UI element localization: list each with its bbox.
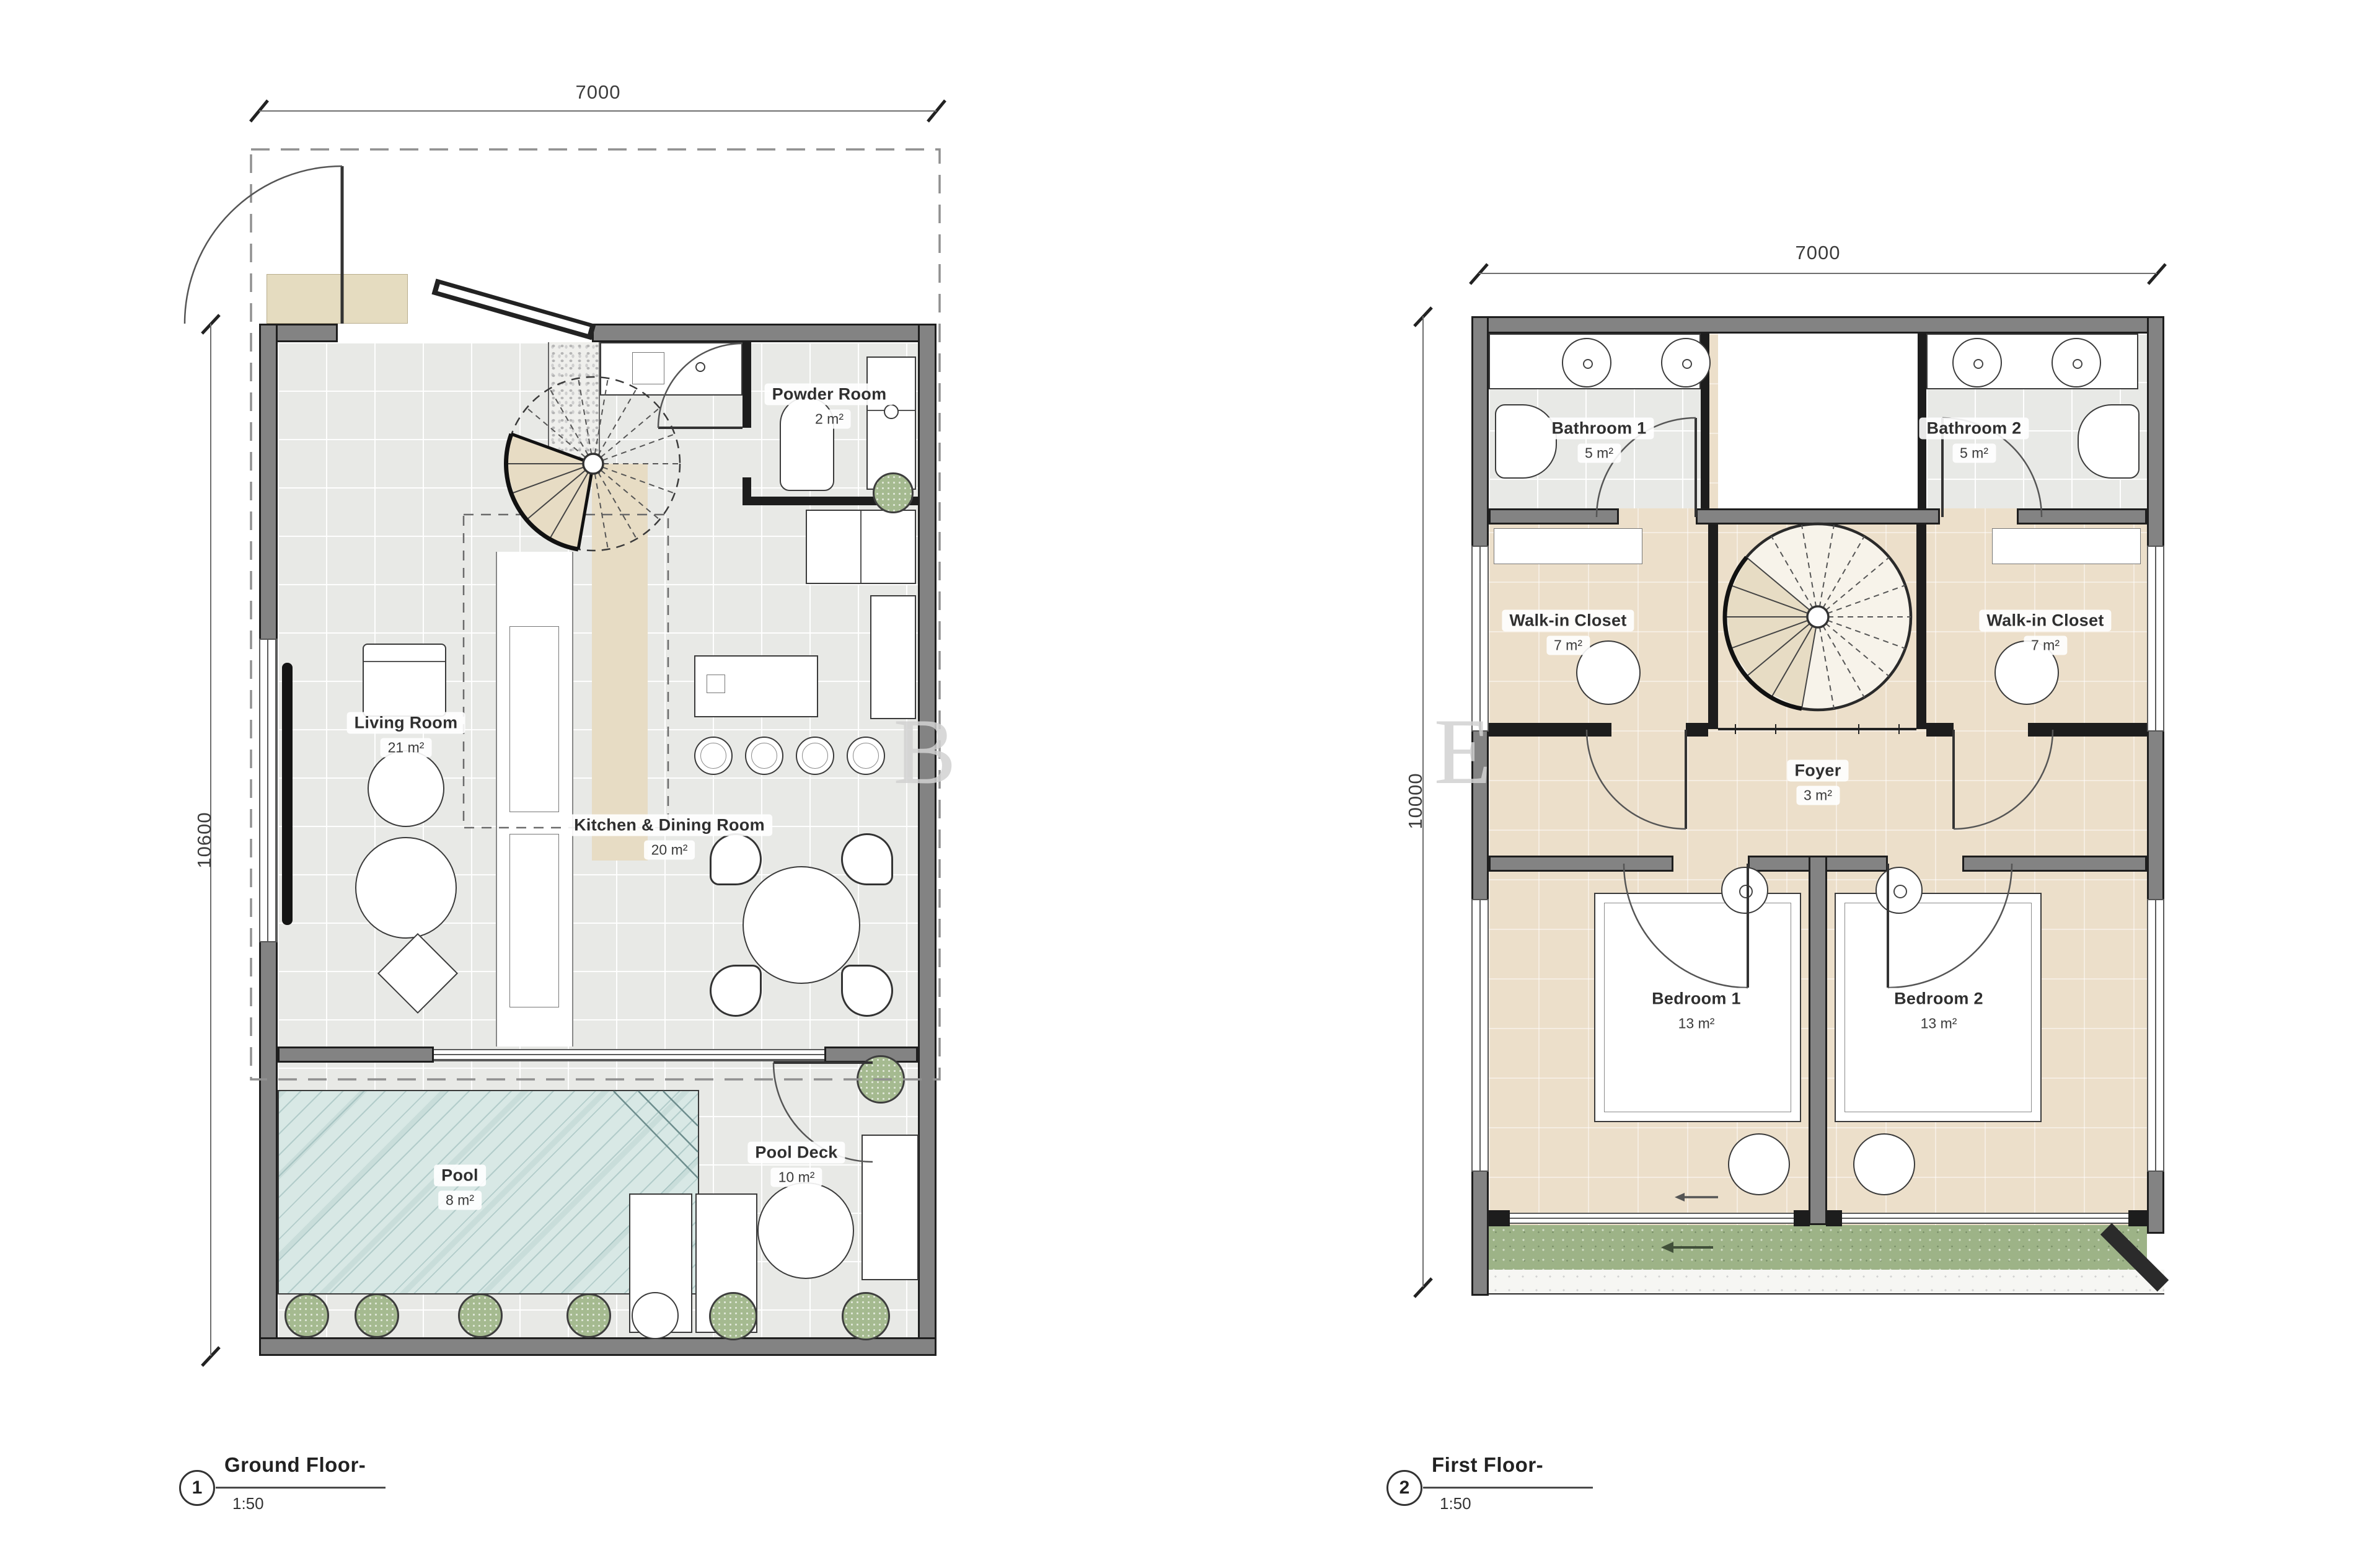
gf-dining-chair-ne <box>841 833 893 885</box>
room-area: 10 m² <box>771 1168 822 1187</box>
gf-callout-title: Ground Floor- <box>224 1453 366 1477</box>
gf-bar-stool-2 <box>745 737 783 775</box>
gf-armchair <box>363 644 446 717</box>
room-name: Pool <box>434 1165 486 1187</box>
ff-bedroom-wall-right <box>1962 856 2147 872</box>
room-area: 7 m² <box>2024 636 2067 655</box>
gf-stair-walkway <box>592 464 648 861</box>
ff-pouf-bedroom2 <box>1853 1133 1915 1195</box>
ff-callout-number: 2 <box>1386 1470 1422 1506</box>
room-name: Walk-in Closet <box>1979 610 2111 632</box>
room-name: Foyer <box>1787 760 1848 782</box>
gf-callout-scale: 1:50 <box>232 1494 264 1513</box>
room-name: Powder Room <box>765 384 894 405</box>
gf-ottoman <box>355 837 457 939</box>
floor-plan-sheet: 7000 10600 Powder Room 2 m² Living Room … <box>0 0 2380 1558</box>
gf-plant-2 <box>355 1293 399 1338</box>
gf-powder-plant <box>873 472 914 513</box>
gf-bar-stool-1 <box>694 737 733 775</box>
room-area: 13 m² <box>1913 1014 1965 1034</box>
ff-stair-wall-right <box>1916 524 1926 729</box>
gf-callout-number: 1 <box>179 1470 215 1506</box>
room-label-closet-right: Walk-in Closet 7 m² <box>1979 610 2111 655</box>
gf-dim-line-top <box>259 110 937 112</box>
ff-slider-stub-3 <box>1826 1210 1842 1226</box>
gf-angled-entry-wall-core <box>439 288 589 330</box>
ff-bath2-drain-2 <box>2073 359 2082 369</box>
ff-wall-below-bath1-left <box>1489 508 1619 524</box>
room-label-foyer: Foyer 3 m² <box>1787 760 1848 805</box>
ff-lamp-2 <box>1893 885 1907 898</box>
watermark-letter-b: B <box>893 697 956 805</box>
room-label-bedroom2: Bedroom 2 13 m² <box>1887 988 1991 1034</box>
gf-dining-chair-sw <box>710 965 762 1017</box>
ff-dim-line-top <box>1479 273 2157 274</box>
room-area: 20 m² <box>644 841 695 860</box>
gf-stone-strip <box>548 342 600 474</box>
ff-callout-scale: 1:50 <box>1440 1494 1471 1513</box>
ff-stair-wall-left <box>1708 524 1718 729</box>
room-label-bedroom1: Bedroom 1 13 m² <box>1644 988 1748 1034</box>
room-name: Bedroom 2 <box>1887 988 1991 1010</box>
gf-island-sink <box>707 675 725 693</box>
ff-pouf-bedroom1 <box>1728 1133 1790 1195</box>
room-name: Kitchen & Dining Room <box>566 815 772 836</box>
room-area: 13 m² <box>1671 1014 1722 1034</box>
room-name: Pool Deck <box>747 1142 845 1164</box>
ff-slider-stub-1 <box>1489 1210 1510 1226</box>
gf-dining-table <box>743 866 860 984</box>
ff-bedroom1-slider <box>1510 1213 1794 1224</box>
ff-window-left-bedroom <box>1471 899 1489 1172</box>
ff-closet2-wardrobe <box>1992 528 2141 564</box>
gf-wall-right <box>918 324 937 1356</box>
watermark-letter-e: E <box>1434 697 1492 805</box>
gf-plant-7 <box>857 1055 905 1104</box>
gf-cooktop <box>632 352 664 384</box>
ff-lamp-1 <box>1739 885 1753 898</box>
ff-closet1-wall-stub <box>1686 723 1708 737</box>
gf-wall-top-right <box>592 324 937 342</box>
ff-closet2-wall-stub <box>1926 723 1954 737</box>
ff-closet1-wardrobe <box>1494 528 1642 564</box>
gf-angled-entry-wall <box>434 286 594 332</box>
room-area: 2 m² <box>808 410 851 429</box>
gf-kitchen-sink <box>695 362 705 372</box>
ff-dim-top-label: 7000 <box>1796 242 1841 264</box>
gf-plant-1 <box>284 1293 329 1338</box>
ff-bedroom-divider-wall <box>1809 856 1827 1225</box>
ff-closet2-wall <box>2028 723 2147 737</box>
ff-bath2-drain-1 <box>1973 359 1983 369</box>
room-area: 3 m² <box>1796 786 1840 805</box>
room-name: Walk-in Closet <box>1502 610 1634 632</box>
gf-callout-underline <box>216 1487 386 1489</box>
gf-kitchen-counter-top <box>600 342 743 396</box>
room-label-pool-deck: Pool Deck 10 m² <box>747 1142 845 1187</box>
room-label-pool: Pool 8 m² <box>434 1165 486 1210</box>
ff-stair-void <box>1718 334 1918 508</box>
ff-slider-stub-4 <box>2128 1210 2147 1226</box>
gf-planter-white <box>632 1292 679 1339</box>
room-name: Living Room <box>347 712 465 734</box>
gf-plant-6 <box>842 1292 890 1340</box>
gf-plant-3 <box>458 1293 503 1338</box>
ff-bath2-toilet <box>2078 404 2140 479</box>
gf-wall-bottom <box>259 1337 937 1356</box>
room-label-kitchen: Kitchen & Dining Room 20 m² <box>566 815 772 860</box>
gf-dim-left-label: 10600 <box>193 812 216 868</box>
ff-bedroom2-slider <box>1842 1213 2128 1224</box>
room-name: Bathroom 1 <box>1544 418 1654 440</box>
ff-balcony-turf <box>1489 1225 2147 1270</box>
ff-balcony-edge <box>1489 1270 2164 1295</box>
room-area: 7 m² <box>1546 636 1590 655</box>
room-name: Bedroom 1 <box>1644 988 1748 1010</box>
gf-dim-top-label: 7000 <box>576 81 621 104</box>
gf-sliding-glass-door <box>434 1049 824 1061</box>
ff-wall-top <box>1471 316 2164 334</box>
gf-dining-chair-se <box>841 965 893 1017</box>
gf-powder-wall-upper <box>743 342 751 428</box>
gf-bar-stool-3 <box>796 737 834 775</box>
gf-tv-console <box>282 663 293 925</box>
ff-bedroom-wall-left <box>1489 856 1673 872</box>
room-label-powder: Powder Room 2 m² <box>765 384 894 429</box>
ff-callout-title: First Floor- <box>1432 1453 1543 1477</box>
ff-wall-below-bath-center <box>1696 508 1940 524</box>
ff-window-right-closet <box>2147 546 2164 732</box>
room-label-bathroom2: Bathroom 2 5 m² <box>1919 418 2029 463</box>
room-area: 21 m² <box>381 738 432 758</box>
ff-slider-stub-2 <box>1794 1210 1810 1226</box>
room-label-bathroom1: Bathroom 1 5 m² <box>1544 418 1654 463</box>
ff-dim-left-label: 10000 <box>1404 772 1427 829</box>
gf-kitchen-appliances <box>806 510 916 584</box>
room-area: 8 m² <box>438 1191 482 1210</box>
ff-wall-below-bath2-right <box>2017 508 2147 524</box>
gf-shelf-lower <box>509 834 559 1007</box>
ff-callout-underline <box>1423 1487 1593 1489</box>
gf-side-table <box>368 750 444 827</box>
room-name: Bathroom 2 <box>1919 418 2029 440</box>
room-label-living: Living Room 21 m² <box>347 712 465 758</box>
gf-entry-mat <box>267 274 408 324</box>
ff-window-right-bedroom <box>2147 899 2164 1172</box>
room-area: 5 m² <box>1577 444 1621 463</box>
gf-shelf-upper <box>509 626 559 812</box>
gf-bar-stool-4 <box>847 737 885 775</box>
room-area: 5 m² <box>1952 444 1996 463</box>
ff-bath1-drain-2 <box>1682 359 1692 369</box>
ff-closet1-wall <box>1489 723 1611 737</box>
gf-plant-4 <box>566 1293 611 1338</box>
room-label-closet-left: Walk-in Closet 7 m² <box>1502 610 1634 655</box>
gf-lounger-3 <box>862 1135 919 1280</box>
gf-wall-pool-left <box>278 1047 434 1063</box>
gf-deck-table <box>757 1182 854 1279</box>
gf-plant-5 <box>709 1292 757 1340</box>
gf-window-left <box>259 639 278 942</box>
ff-bath1-drain-1 <box>1583 359 1593 369</box>
